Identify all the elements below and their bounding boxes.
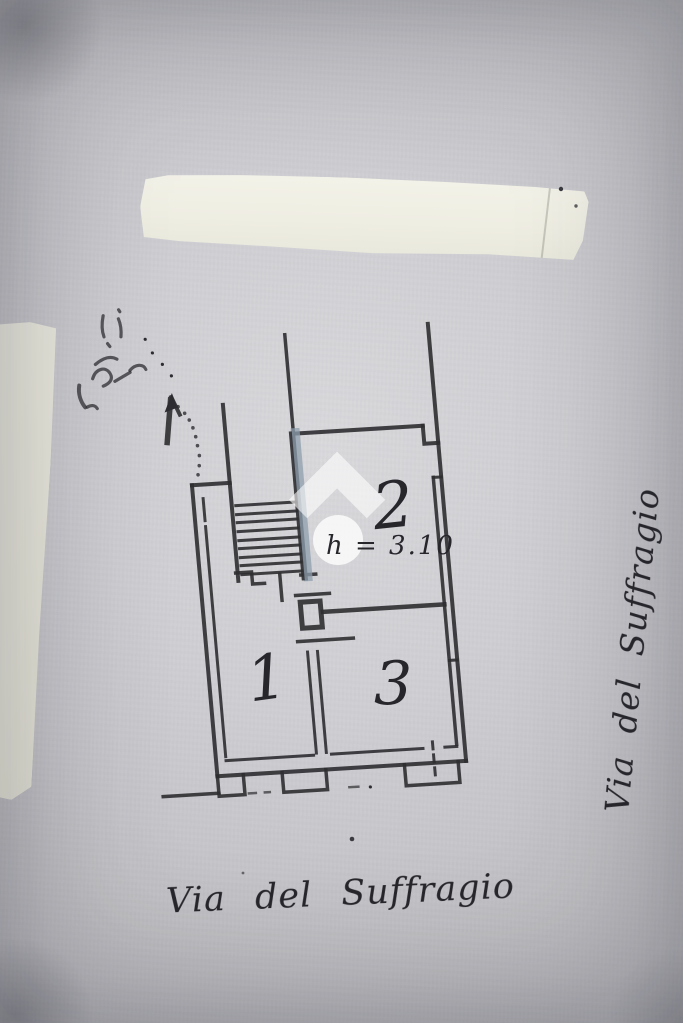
vestibule-top-wall — [192, 483, 230, 485]
bottom-outer-wall — [217, 761, 466, 776]
room2-room3-partition — [323, 604, 444, 611]
pencil-scribble — [72, 307, 175, 410]
threshold-dashes — [432, 742, 435, 781]
bottom-left-extension-line — [163, 793, 219, 796]
room-1-label: 1 — [242, 639, 291, 717]
bottom-inner-wall-left — [226, 755, 314, 760]
room-height-label: h = 3.10 — [326, 531, 455, 561]
scanned-floor-plan-photo: 2 h = 3.10 1 3 Via del Suffragio Via del… — [0, 0, 683, 1023]
door-opening-line-lower — [298, 638, 354, 641]
door-leaf-mark — [280, 574, 282, 600]
stair-left-wall — [223, 405, 238, 581]
floor-plan-drawing: 2 h = 3.10 1 3 — [0, 0, 683, 1023]
room1-room3-partition-b — [317, 651, 326, 752]
room2-top-wall — [296, 426, 422, 434]
north-arrow-icon — [163, 391, 203, 478]
room-3-label: 3 — [374, 649, 412, 719]
door-opening-line-upper — [296, 593, 330, 595]
plan-labels: 2 h = 3.10 1 3 — [242, 467, 455, 719]
door-pivot-symbol — [300, 601, 322, 628]
room1-room3-partition-a — [308, 652, 317, 753]
bottom-inner-wall-right — [331, 748, 423, 754]
left-wall-door-jamb — [203, 499, 205, 521]
stairs — [236, 502, 304, 575]
left-inner-wall — [206, 527, 226, 757]
